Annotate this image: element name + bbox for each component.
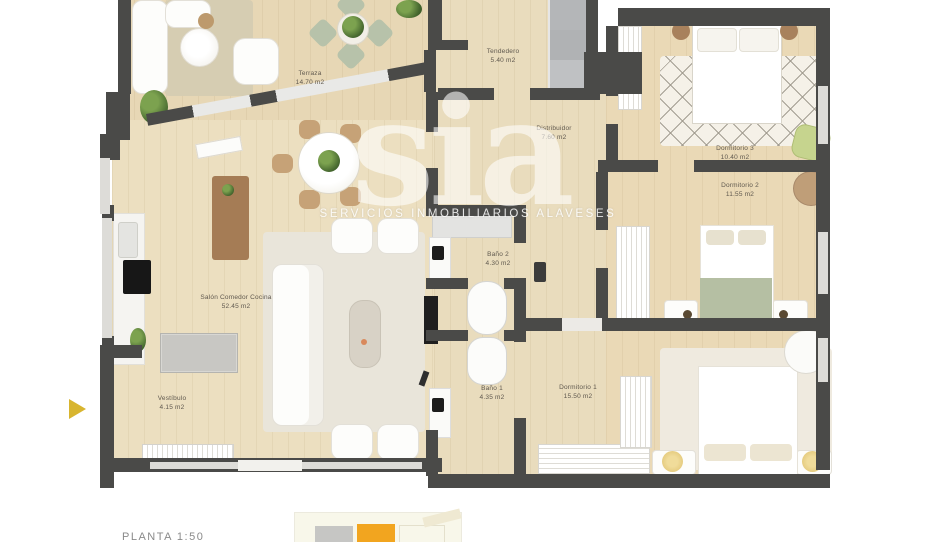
kitchen-sink: [118, 222, 138, 258]
carousel-next-arrow-icon[interactable]: [69, 399, 86, 419]
window: [100, 158, 110, 214]
wardrobe: [620, 376, 652, 448]
window: [818, 86, 828, 144]
sofa: [272, 264, 324, 426]
wall: [428, 474, 830, 488]
room-label-salon: Salón Comedor Cocina52.45 m2: [200, 294, 271, 312]
room-label-bano2: Baño 24.30 m2: [486, 251, 511, 269]
bedside-lamp: [662, 451, 683, 472]
bed1-pillow: [704, 444, 746, 461]
window: [818, 338, 828, 382]
window: [562, 318, 602, 331]
bed3-pillow: [739, 28, 779, 52]
bath2-sink: [432, 246, 444, 260]
plant: [222, 184, 234, 196]
wall: [426, 330, 468, 341]
wardrobe: [538, 444, 650, 474]
terrace-coffee-table: [180, 28, 219, 67]
thumb-outline: [399, 525, 445, 542]
room-label-tendedero: Tendedero5.40 m2: [487, 48, 520, 66]
plant: [342, 16, 364, 38]
terrace-sofa-module: [132, 0, 168, 94]
room-label-dormitorio2: Dormitorio 211.55 m2: [721, 182, 759, 200]
coffee-table: [349, 300, 381, 368]
wall: [694, 160, 830, 172]
dining-chair: [299, 190, 320, 209]
watermark-tagline: SERVICIOS INMOBILIARIOS ALAVESES: [320, 208, 617, 220]
thumb-room-grey: [315, 526, 353, 542]
bath-tub-column: [467, 281, 507, 335]
wall: [516, 318, 562, 331]
dining-chair: [272, 154, 293, 173]
window: [102, 218, 112, 338]
wall: [586, 0, 598, 52]
terrace-pouf: [233, 38, 279, 85]
bed1-pillow: [750, 444, 792, 461]
bed3-pillow: [697, 28, 737, 52]
bed2-pillow: [738, 230, 766, 245]
bed2-pillow: [706, 230, 734, 245]
wall: [618, 8, 830, 26]
terrace-side-table: [198, 13, 214, 29]
wall: [102, 336, 114, 352]
wall: [602, 318, 830, 331]
room-label-vestibulo: Vestíbulo4.15 m2: [158, 395, 187, 413]
armchair: [331, 424, 373, 460]
room-label-bano1: Baño 14.35 m2: [480, 385, 505, 403]
next-image-caption: PLANTA 1:50: [122, 531, 262, 542]
thumb-room-orange: [357, 524, 395, 542]
room-label-terraza: Terraza14.70 m2: [296, 70, 325, 88]
room-label-dormitorio3: Dormitorio 310.40 m2: [716, 145, 754, 163]
coffee-table-decor: [361, 339, 367, 345]
bath-shower-column: [467, 337, 507, 385]
entrance-door: [238, 460, 302, 471]
wall: [426, 278, 468, 289]
wall: [426, 430, 438, 476]
wall: [598, 160, 658, 172]
next-floorplan-thumbnail[interactable]: [294, 512, 462, 542]
plant: [318, 150, 340, 172]
hall-radiator: [534, 262, 546, 282]
wall: [428, 0, 442, 50]
wall: [100, 134, 120, 160]
wall: [606, 124, 618, 160]
window: [818, 232, 828, 294]
bed2-blanket: [700, 278, 772, 323]
wardrobe: [616, 226, 650, 324]
kitchen-cooktop: [123, 260, 151, 294]
watermark-logo: sia: [351, 78, 568, 226]
wall: [514, 418, 526, 474]
armchair: [377, 424, 419, 460]
wall: [100, 352, 114, 488]
kitchen-lower-cabinet: [160, 333, 238, 373]
wall: [596, 172, 608, 230]
wall: [606, 26, 618, 96]
floorplan-viewer: Terraza14.70 m2 Salón Comedor Cocina52.4…: [0, 0, 948, 542]
wall: [514, 280, 526, 342]
wall: [106, 92, 130, 140]
bath1-sink: [432, 398, 444, 412]
wall: [118, 0, 131, 94]
wall: [442, 40, 468, 50]
room-label-dormitorio1: Dormitorio 115.50 m2: [559, 384, 597, 402]
plant: [396, 0, 422, 18]
